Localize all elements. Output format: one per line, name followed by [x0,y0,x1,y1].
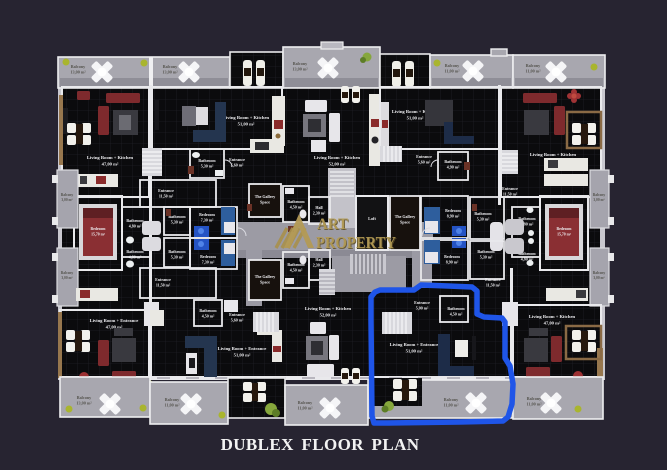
svg-text:Living Room + Kitchen: Living Room + Kitchen [530,152,577,157]
svg-text:52,00 m²: 52,00 m² [329,162,346,167]
svg-text:13,00 m²: 13,00 m² [76,401,92,406]
svg-text:Hall: Hall [315,205,323,210]
svg-text:ART: ART [317,216,348,233]
svg-text:Hall: Hall [315,257,323,262]
svg-text:51,00 m²: 51,00 m² [407,116,424,121]
svg-text:11,50 m²: 11,50 m² [156,283,171,288]
svg-text:Bathroom: Bathroom [477,249,495,254]
svg-text:8,90 m²: 8,90 m² [446,260,459,265]
svg-text:Entrance: Entrance [416,154,432,159]
svg-text:11,00 m²: 11,00 m² [526,69,542,74]
svg-text:11,50 m²: 11,50 m² [503,192,518,197]
svg-text:Entrance: Entrance [485,277,501,282]
svg-text:Space: Space [400,220,410,225]
svg-text:4,50 m²: 4,50 m² [450,312,463,317]
svg-text:Balcony: Balcony [61,271,74,275]
svg-text:7,30 m²: 7,30 m² [201,218,214,223]
svg-text:Bedroom: Bedroom [91,227,107,231]
svg-text:11,00 m²: 11,00 m² [445,69,461,74]
svg-text:4,80 m²: 4,80 m² [129,255,142,260]
svg-text:Living Room + Kitchen: Living Room + Kitchen [529,314,576,319]
svg-text:Living Room + Kitchen: Living Room + Kitchen [314,155,361,160]
svg-text:Bathroom: Bathroom [199,308,217,313]
svg-text:Bathroom: Bathroom [447,306,465,311]
svg-text:PROPERTY: PROPERTY [316,233,396,252]
svg-text:51,00 m²: 51,00 m² [238,122,255,127]
svg-text:8,90 m²: 8,90 m² [447,214,460,219]
svg-text:13,00 m²: 13,00 m² [70,70,86,75]
svg-text:Entrance: Entrance [414,300,430,305]
svg-text:Bedroom: Bedroom [557,227,573,231]
svg-text:2,30 m²: 2,30 m² [313,263,326,268]
svg-text:Living Room + Kitchen: Living Room + Kitchen [305,306,352,311]
svg-text:Balcony: Balcony [77,395,92,400]
svg-text:5,30 m²: 5,30 m² [171,220,184,225]
svg-text:3,00 m²: 3,00 m² [61,198,72,202]
svg-text:4,50 m²: 4,50 m² [202,314,215,319]
svg-text:13,00 m²: 13,00 m² [292,67,308,72]
svg-text:13,00 m²: 13,00 m² [162,70,178,75]
svg-text:The Gallery: The Gallery [255,194,276,199]
svg-text:5,30 m²: 5,30 m² [201,164,214,169]
svg-text:Living Room + Entrance: Living Room + Entrance [390,342,439,347]
svg-text:Balcony: Balcony [593,193,606,197]
svg-text:Entrance: Entrance [229,157,245,162]
svg-text:5,30 m²: 5,30 m² [171,255,184,260]
svg-text:4,80 m²: 4,80 m² [129,224,142,229]
svg-text:Bedroom: Bedroom [444,254,460,259]
svg-text:The Gallery: The Gallery [395,214,416,219]
svg-text:15,70 m²: 15,70 m² [91,233,106,237]
svg-text:Living Room + Kitchen: Living Room + Kitchen [87,155,134,160]
svg-text:Entrance: Entrance [502,186,518,191]
svg-text:Entrance: Entrance [158,188,174,193]
svg-text:3,00 m²: 3,00 m² [61,276,72,280]
svg-text:11,00 m²: 11,00 m² [165,403,181,408]
svg-text:5,60 m²: 5,60 m² [231,163,244,168]
svg-text:47,00 m²: 47,00 m² [544,321,561,326]
svg-text:Balcony: Balcony [445,63,460,68]
svg-text:Bathroom: Bathroom [444,159,462,164]
svg-text:15,70 m²: 15,70 m² [557,233,572,237]
svg-text:51,00 m²: 51,00 m² [234,353,251,358]
svg-text:Balcony: Balcony [71,64,86,69]
svg-text:Entrance: Entrance [155,277,171,282]
svg-text:5,30 m²: 5,30 m² [480,255,493,260]
svg-text:2,30 m²: 2,30 m² [313,211,326,216]
svg-text:5,60 m²: 5,60 m² [418,160,431,165]
svg-text:Balcony: Balcony [165,397,180,402]
svg-text:Balcony: Balcony [527,396,542,401]
svg-text:11,50 m²: 11,50 m² [159,194,174,199]
svg-text:Bathroom: Bathroom [168,249,186,254]
svg-text:11,00 m²: 11,00 m² [527,402,543,407]
svg-text:Balcony: Balcony [163,64,178,69]
svg-text:3,00 m²: 3,00 m² [593,276,604,280]
svg-text:51,00 m²: 51,00 m² [406,349,423,354]
svg-text:11,50 m²: 11,50 m² [486,283,501,288]
svg-text:Bedroom: Bedroom [200,254,216,259]
svg-text:47,00 m²: 47,00 m² [102,162,119,167]
svg-text:Bathroom: Bathroom [198,158,216,163]
svg-text:52,00 m²: 52,00 m² [320,313,337,318]
svg-text:Bedroom: Bedroom [445,208,461,213]
svg-text:The Gallery: The Gallery [255,274,276,279]
svg-text:Balcony: Balcony [298,400,313,405]
svg-text:11,00 m²: 11,00 m² [444,403,460,408]
svg-text:5,30 m²: 5,30 m² [477,217,490,222]
svg-text:3,00 m²: 3,00 m² [593,198,604,202]
svg-text:5,60 m²: 5,60 m² [231,318,244,323]
svg-text:Bathroom: Bathroom [287,199,305,204]
svg-text:Entrance: Entrance [229,312,245,317]
svg-text:Bathroom: Bathroom [474,211,492,216]
svg-text:Bedroom: Bedroom [199,212,215,217]
svg-text:11,00 m²: 11,00 m² [298,406,314,411]
svg-text:Bathroom: Bathroom [126,218,144,223]
svg-text:4,90 m²: 4,90 m² [447,165,460,170]
svg-text:DUBLEX FLOOR PLAN: DUBLEX FLOOR PLAN [221,435,420,454]
svg-text:Balcony: Balcony [593,271,606,275]
svg-text:4,50 m²: 4,50 m² [290,205,303,210]
svg-text:Balcony: Balcony [61,193,74,197]
svg-text:Living Room + Entrance: Living Room + Entrance [218,346,267,351]
svg-text:Space: Space [260,200,270,205]
svg-text:Space: Space [260,280,270,285]
svg-text:Loft: Loft [368,216,376,221]
svg-text:Bathroom: Bathroom [126,249,144,254]
svg-text:Balcony: Balcony [526,63,541,68]
svg-text:4,50 m²: 4,50 m² [290,268,303,273]
svg-text:Bathroom: Bathroom [168,214,186,219]
svg-text:Balcony: Balcony [293,61,308,66]
svg-text:Balcony: Balcony [444,397,459,402]
svg-text:7,30 m²: 7,30 m² [202,260,215,265]
svg-text:Living Room + Kitchen: Living Room + Kitchen [223,115,270,120]
svg-text:Living Room + Entrance: Living Room + Entrance [90,318,139,323]
svg-text:5,00 m²: 5,00 m² [416,306,429,311]
